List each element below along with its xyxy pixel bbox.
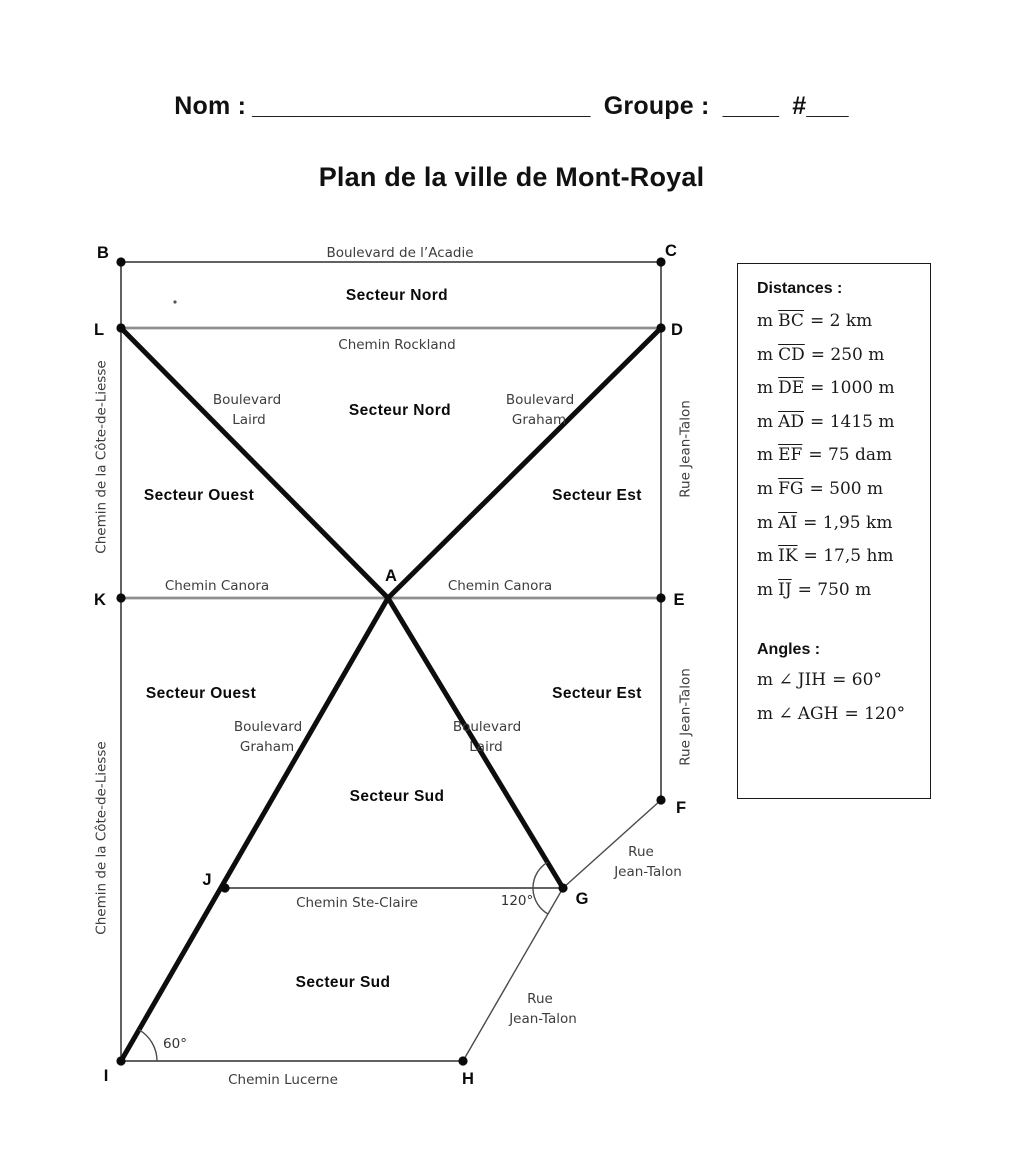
point-f-dot bbox=[656, 795, 665, 804]
street-label-jean-talon-fg-1: Rue bbox=[628, 844, 654, 860]
sector-label-sud-1: Secteur Sud bbox=[350, 788, 445, 805]
street-label-canora-left: Chemin Canora bbox=[165, 578, 269, 594]
point-g-dot bbox=[558, 883, 567, 892]
point-j-dot bbox=[220, 883, 229, 892]
point-i-dot bbox=[116, 1056, 125, 1065]
angle-row-agh: m ∠AGH= 120° bbox=[757, 698, 930, 732]
sector-label-nord-1: Secteur Nord bbox=[346, 287, 448, 304]
point-label-i: I bbox=[104, 1067, 109, 1085]
sector-label-est-1: Secteur Est bbox=[552, 487, 642, 504]
street-label-jean-talon-right-lower: Rue Jean-Talon bbox=[678, 668, 694, 766]
sector-label-nord-2: Secteur Nord bbox=[349, 402, 451, 419]
point-label-h: H bbox=[462, 1070, 474, 1088]
sector-label-sud-2: Secteur Sud bbox=[296, 974, 391, 991]
point-label-c: C bbox=[665, 242, 677, 260]
point-d-dot bbox=[656, 323, 665, 332]
distance-row-cd: mCD= 250 m bbox=[757, 339, 930, 373]
sector-label-ouest-1: Secteur Ouest bbox=[144, 487, 254, 504]
sector-label-ouest-2: Secteur Ouest bbox=[146, 685, 256, 702]
point-label-a: A bbox=[385, 567, 397, 585]
street-label-jean-talon-gh-1: Rue bbox=[527, 991, 553, 1007]
angle-label-120: 120° bbox=[501, 893, 534, 909]
point-label-e: E bbox=[673, 591, 684, 609]
street-label-graham-upper-1: Boulevard bbox=[506, 392, 574, 408]
angle-row-jih: m ∠JIH= 60° bbox=[757, 664, 930, 698]
street-label-jean-talon-gh-2: Jean-Talon bbox=[508, 1011, 577, 1027]
distance-row-ai: mAI= 1,95 km bbox=[757, 507, 930, 541]
distance-row-ik: mIK= 17,5 hm bbox=[757, 540, 930, 574]
street-label-laird-lower-2: Laird bbox=[469, 739, 502, 755]
street-label-ste-claire: Chemin Ste-Claire bbox=[296, 895, 418, 911]
road-line-graham-upper bbox=[388, 328, 661, 598]
point-label-b: B bbox=[97, 244, 109, 262]
stray-dot bbox=[173, 300, 176, 303]
street-label-graham-lower-2: Graham bbox=[240, 739, 294, 755]
point-l-dot bbox=[116, 323, 125, 332]
street-label-laird-upper-1: Boulevard bbox=[213, 392, 281, 408]
road-line-graham-lower bbox=[121, 598, 388, 1061]
point-k-dot bbox=[116, 593, 125, 602]
street-label-cote-de-liesse-lower: Chemin de la Côte-de-Liesse bbox=[94, 741, 110, 934]
worksheet-page: Nom :________________________ Groupe : _… bbox=[0, 0, 1023, 1150]
angle-arc-60-at-i bbox=[139, 1030, 157, 1061]
street-label-graham-upper-2: Graham bbox=[512, 412, 566, 428]
distance-row-ij: mIJ= 750 m bbox=[757, 574, 930, 608]
distance-row-de: mDE= 1000 m bbox=[757, 372, 930, 406]
street-label-graham-lower-1: Boulevard bbox=[234, 719, 302, 735]
point-label-d: D bbox=[671, 321, 683, 339]
street-label-jean-talon-fg-2: Jean-Talon bbox=[613, 864, 682, 880]
measurements-panel: Distances : mBC= 2 km mCD= 250 m mDE= 10… bbox=[737, 263, 931, 799]
street-label-rockland: Chemin Rockland bbox=[338, 337, 455, 353]
street-label-cote-de-liesse-upper: Chemin de la Côte-de-Liesse bbox=[94, 360, 110, 553]
point-label-l: L bbox=[94, 321, 104, 339]
point-label-j: J bbox=[202, 871, 211, 889]
street-label-canora-right: Chemin Canora bbox=[448, 578, 552, 594]
distance-row-fg: mFG= 500 m bbox=[757, 473, 930, 507]
point-e-dot bbox=[656, 593, 665, 602]
point-label-k: K bbox=[94, 591, 106, 609]
street-label-laird-upper-2: Laird bbox=[232, 412, 265, 428]
road-line-laird-upper bbox=[121, 328, 388, 598]
point-h-dot bbox=[458, 1056, 467, 1065]
street-label-laird-lower-1: Boulevard bbox=[453, 719, 521, 735]
point-label-f: F bbox=[676, 799, 686, 817]
distance-row-ef: mEF= 75 dam bbox=[757, 439, 930, 473]
point-b-dot bbox=[116, 257, 125, 266]
street-label-jean-talon-right-upper: Rue Jean-Talon bbox=[678, 400, 694, 498]
angles-heading: Angles : bbox=[757, 641, 930, 659]
distance-row-ad: mAD= 1415 m bbox=[757, 406, 930, 440]
street-label-acadie: Boulevard de l’Acadie bbox=[326, 245, 473, 261]
sector-label-est-2: Secteur Est bbox=[552, 685, 642, 702]
street-label-lucerne: Chemin Lucerne bbox=[228, 1072, 338, 1088]
distances-heading: Distances : bbox=[757, 280, 930, 298]
point-label-g: G bbox=[576, 890, 589, 908]
distance-row-bc: mBC= 2 km bbox=[757, 305, 930, 339]
angle-label-60: 60° bbox=[163, 1036, 187, 1052]
